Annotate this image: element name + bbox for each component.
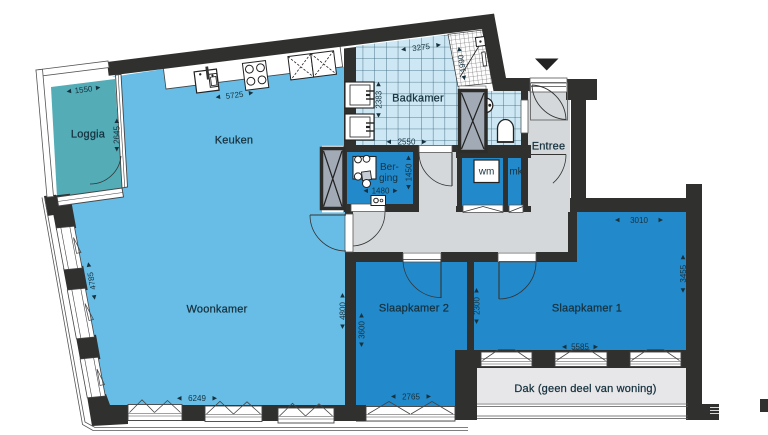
svg-text:Woonkamer: Woonkamer — [187, 304, 248, 316]
svg-text:wm: wm — [478, 167, 495, 178]
svg-text:2550: 2550 — [398, 138, 416, 147]
svg-text:3600: 3600 — [357, 321, 366, 339]
svg-text:2383: 2383 — [374, 90, 383, 108]
svg-text:Dak (geen deel van woning): Dak (geen deel van woning) — [514, 383, 656, 395]
svg-text:Ber-: Ber- — [380, 162, 399, 173]
svg-text:mk: mk — [509, 167, 523, 178]
svg-text:Keuken: Keuken — [215, 135, 254, 147]
svg-text:3010: 3010 — [630, 216, 648, 225]
svg-text:1450: 1450 — [404, 163, 413, 181]
svg-text:2645: 2645 — [113, 126, 122, 144]
svg-text:5585: 5585 — [571, 343, 589, 352]
svg-text:Entree: Entree — [532, 141, 566, 153]
svg-text:3455: 3455 — [679, 264, 688, 282]
svg-text:Slaapkamer 2: Slaapkamer 2 — [379, 303, 449, 315]
svg-text:Slaapkamer 1: Slaapkamer 1 — [552, 303, 622, 315]
svg-text:1480: 1480 — [372, 187, 390, 196]
svg-text:4800: 4800 — [338, 302, 347, 320]
svg-text:Loggia: Loggia — [71, 129, 106, 141]
svg-text:2765: 2765 — [402, 392, 420, 401]
svg-text:6249: 6249 — [188, 394, 206, 403]
svg-text:2300: 2300 — [472, 297, 481, 315]
svg-text:ging: ging — [379, 173, 398, 184]
svg-text:Badkamer: Badkamer — [392, 93, 444, 105]
